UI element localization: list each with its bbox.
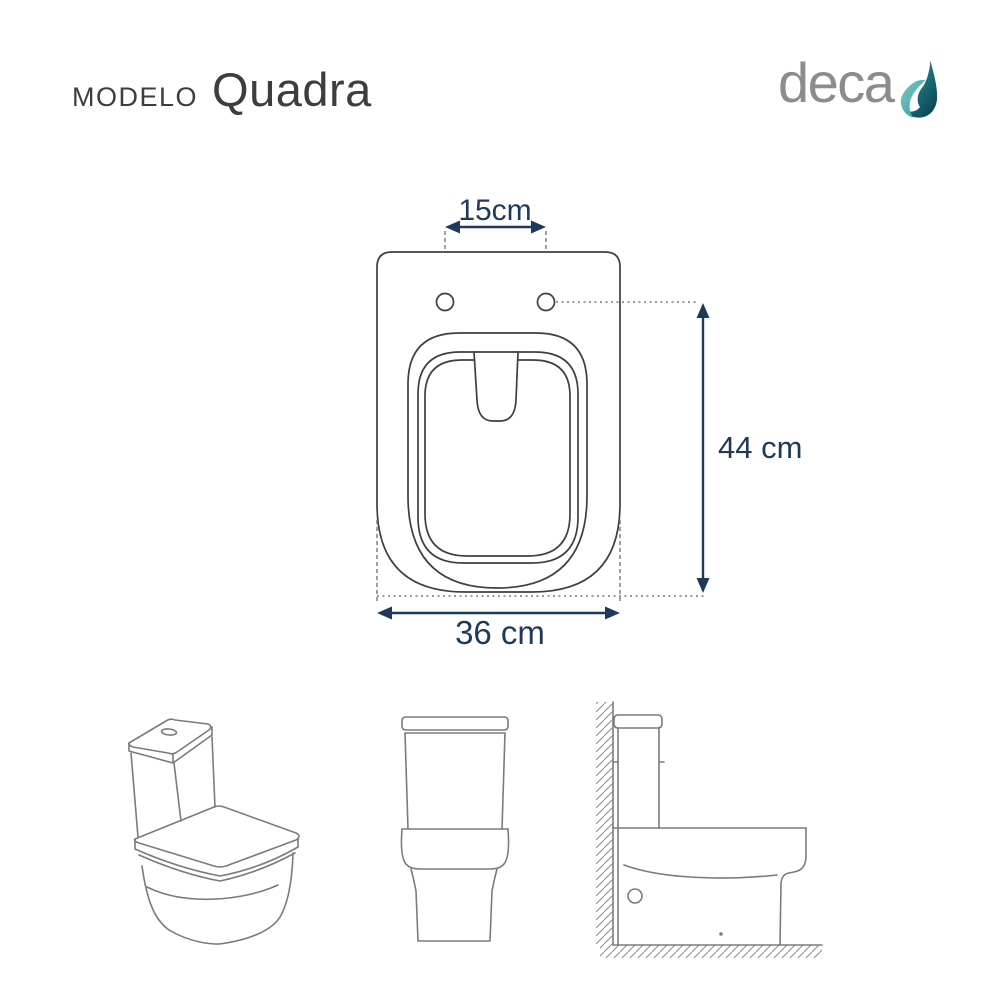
seat-ring-inner [425,360,570,556]
hinge-cover-tab [474,352,518,421]
seat-lid-edge [135,838,298,876]
seat-lid-inner-contour [408,333,587,588]
bolt-dot [719,932,723,936]
dim-44-arrowhead-top [697,303,710,318]
seat-lid-top-face [135,806,300,867]
front-drawing [401,717,508,941]
seat-band [401,829,508,869]
cistern-lid [402,717,508,730]
model-label: MODELO [72,82,198,113]
brand-wordmark: deca [778,54,893,113]
spec-sheet-page: MODELO Quadra deca [0,0,1000,1000]
brand-logo: deca [778,54,940,121]
dimension-label-length: 44 cm [718,432,802,463]
dim-36-arrowhead-right [605,607,620,620]
flush-button [161,728,177,736]
dimension-label-width: 36 cm [408,616,592,649]
dimension-label-hinge-spacing: 15cm [430,196,560,226]
seat-underside-curve [624,865,777,878]
dim-36-arrowhead-left [377,607,392,620]
cistern-sides [405,733,505,829]
pedestal [411,869,497,941]
wall-hatching [596,702,613,945]
hinge-hole-right [538,294,555,311]
cistern-body [131,737,215,837]
supply-hole [628,889,642,903]
cistern-lid [614,715,662,728]
dimension-arrows [377,221,710,620]
side-drawing [613,702,822,945]
toilet-perspective-view [90,690,360,970]
dim-44-arrowhead-bottom [697,578,710,593]
toilet-front-view [380,690,560,970]
body-front-profile [780,828,806,945]
deca-drop-icon [898,57,940,121]
model-name: Quadra [212,62,372,117]
seat-ring-outer [418,352,578,563]
perspective-drawing [129,719,299,944]
bowl-contour-line [147,885,278,899]
seat-drawing [377,252,620,592]
floor-hatching [600,945,822,958]
seat-lid-outline [377,252,620,592]
cistern-lid-top [129,719,211,754]
hinge-hole-left [437,294,454,311]
toilet-side-view [580,680,900,980]
cistern-lid-side [129,727,212,763]
cistern-sides [618,728,659,828]
page-title: MODELO Quadra [72,62,372,117]
